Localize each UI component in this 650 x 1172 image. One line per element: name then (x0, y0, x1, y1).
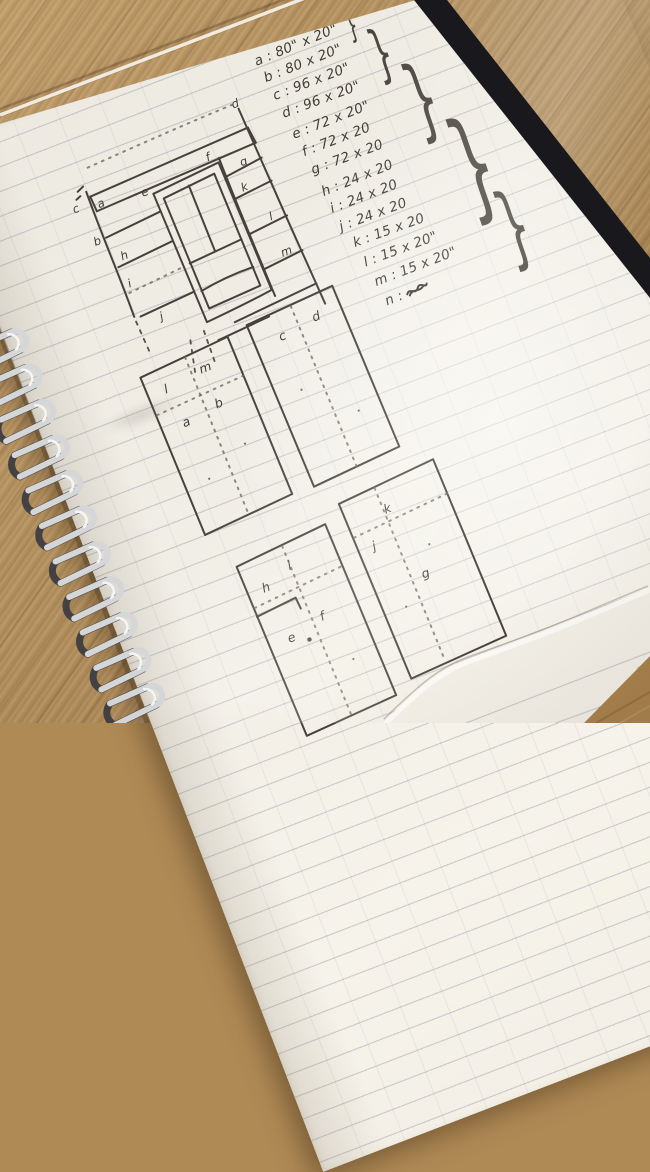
sheet3-label-i: i (285, 557, 294, 572)
elevation-label-h: h (118, 247, 130, 263)
elevation-label-d: d (229, 95, 241, 111)
elevation-labels: c a b h i j e f d g k l m (56, 95, 304, 338)
sheet-1: l m a b (138, 335, 295, 536)
sheet3-label-h: h (259, 579, 272, 596)
sheet-outline (138, 335, 295, 536)
sheet1-label-b: b (212, 394, 225, 411)
sheet1-label-a: a (180, 413, 193, 430)
sheet3-label-f: f (317, 608, 328, 624)
door-outline (151, 161, 271, 317)
sheet2-label-d: d (310, 308, 323, 325)
sheet3-label-e: e (285, 629, 298, 646)
elevation-label-j: j (155, 309, 166, 324)
sheet2-label-c: c (276, 327, 288, 344)
h-cut-line (255, 597, 300, 624)
top-band-bottom (94, 143, 257, 211)
elevation-label-b: b (91, 233, 103, 249)
sheet-4: k j g (336, 457, 508, 680)
elevation-label-g: g (237, 153, 249, 169)
cutting-sheets-sketch: l m a b c d h i e f (120, 266, 523, 755)
sheet4-label-j: j (368, 538, 379, 554)
elevation-label-m: m (279, 242, 295, 259)
sheet4-label-g: g (419, 565, 432, 582)
elevation-label-c: c (70, 201, 82, 217)
shelf-i-dotted-line (128, 267, 185, 293)
shelf-b-line (104, 212, 162, 238)
sheet4-label-k: k (381, 500, 394, 517)
elevation-label-k: k (239, 179, 251, 195)
elevation-label-l: l (267, 209, 276, 224)
shelf-j-line (139, 292, 195, 317)
door-divider (189, 185, 215, 252)
sheet1-label-l: l (162, 381, 171, 396)
notebook-photo-scene: c a b h i j e f d g k l m a : 80" x 20" … (0, 0, 650, 723)
sheet-2: c d (245, 284, 402, 488)
sheet1-label-m: m (197, 358, 214, 376)
sheet-outline (234, 522, 399, 737)
shelf-l-line (249, 215, 289, 233)
elevation-label-e: e (139, 184, 151, 200)
elevation-label-i: i (125, 276, 134, 291)
ceiling-dotted-line (85, 103, 239, 168)
elevation-label-f: f (203, 149, 214, 164)
sheet-3: h i e f (234, 522, 399, 737)
